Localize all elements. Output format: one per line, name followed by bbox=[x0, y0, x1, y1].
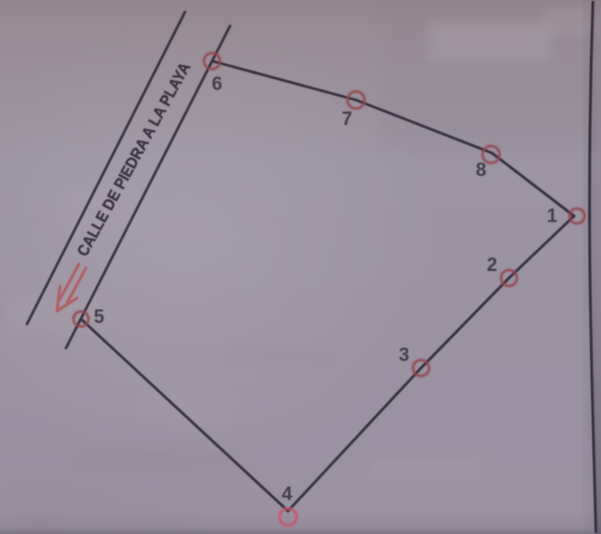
svg-text:8: 8 bbox=[476, 160, 487, 181]
svg-text:3: 3 bbox=[399, 345, 410, 366]
svg-text:5: 5 bbox=[94, 307, 105, 328]
svg-text:1: 1 bbox=[547, 206, 558, 227]
svg-text:6: 6 bbox=[212, 74, 223, 95]
svg-text:7: 7 bbox=[342, 109, 353, 130]
svg-text:4: 4 bbox=[282, 484, 293, 505]
svg-text:2: 2 bbox=[487, 255, 498, 276]
